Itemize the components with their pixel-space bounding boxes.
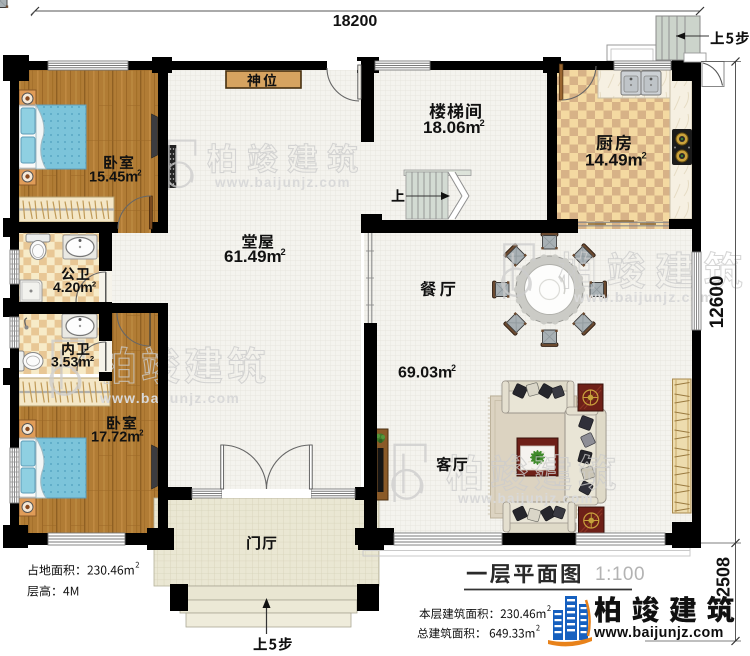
svg-text:2: 2 bbox=[139, 429, 144, 438]
svg-text:www.baijunjz.com: www.baijunjz.com bbox=[457, 491, 594, 506]
svg-text:2: 2 bbox=[92, 279, 96, 288]
svg-text:2: 2 bbox=[90, 354, 94, 363]
svg-text:2: 2 bbox=[641, 151, 646, 161]
svg-text:3.53m: 3.53m bbox=[51, 354, 91, 370]
svg-text:2508: 2508 bbox=[714, 557, 734, 597]
svg-text:14.49m: 14.49m bbox=[585, 151, 643, 170]
svg-text:2: 2 bbox=[137, 169, 142, 178]
svg-text:4.20m: 4.20m bbox=[53, 279, 93, 295]
svg-text:2: 2 bbox=[451, 363, 456, 373]
svg-text:2: 2 bbox=[280, 247, 285, 257]
svg-text:17.72m: 17.72m bbox=[91, 430, 140, 446]
svg-text:69.03m: 69.03m bbox=[398, 365, 452, 382]
svg-text:www.baijunjz.com: www.baijunjz.com bbox=[214, 175, 351, 190]
svg-text:1:100: 1:100 bbox=[595, 564, 645, 585]
svg-text:12600: 12600 bbox=[707, 276, 728, 329]
svg-text:15.45m: 15.45m bbox=[89, 170, 138, 186]
svg-text:61.49m: 61.49m bbox=[224, 247, 282, 266]
svg-text:18200: 18200 bbox=[333, 13, 378, 30]
svg-text:www.baijunjz.com: www.baijunjz.com bbox=[99, 390, 240, 406]
svg-text:www.baijunjz.com: www.baijunjz.com bbox=[593, 625, 724, 641]
svg-text:18.06m: 18.06m bbox=[423, 118, 481, 137]
svg-text:2: 2 bbox=[479, 118, 484, 128]
